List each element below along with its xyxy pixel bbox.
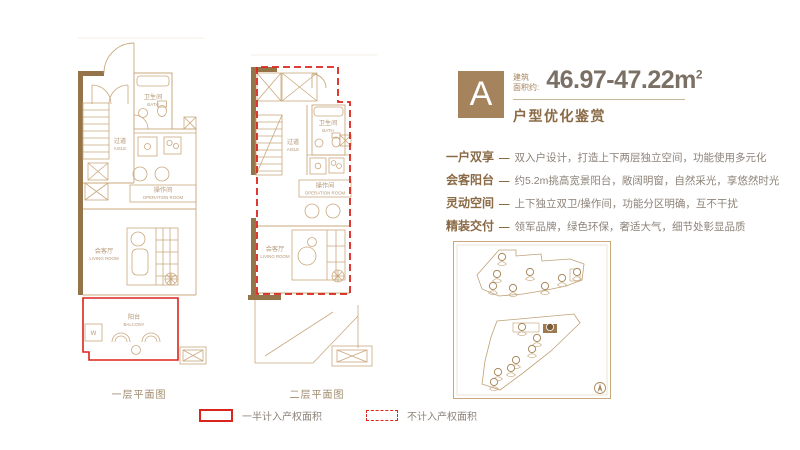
feature-dash: — [499, 175, 510, 187]
feature-list: 一户双享—双入户设计，打造上下两层独立空间，功能使用多元化 会客阳台—约5.2m… [446, 148, 796, 240]
area-number: 46.97-47.22m [546, 66, 696, 94]
room-label-living-cn: 会客厅 [266, 245, 285, 253]
floorplan-flyer: 卫生间 BATH 过道 AISLE 操作间 OPERATION ROOM 会客厅… [0, 0, 800, 450]
unit-markers [489, 253, 582, 390]
feature-desc: 领军品牌，绿色环保，奢适大气，细节处彰显品质 [515, 221, 746, 233]
room-label-operation-en: OPERATION ROOM [305, 191, 346, 196]
feature-keyword: 会客阳台 [446, 173, 494, 187]
room-label-aisle-en: AISLE [114, 146, 127, 151]
feature-desc: 上下独立双卫/操作间，功能分区明确，互不干扰 [515, 198, 738, 210]
room-label-balcony-en: BALCONY [124, 322, 145, 327]
entry-door [104, 43, 134, 73]
room-label-operation-cn: 操作间 [316, 182, 335, 190]
room-label-living-en: LIVING ROOM [89, 256, 119, 261]
room-label-operation-cn: 操作间 [154, 186, 173, 194]
site-plan-drawing [453, 241, 611, 399]
first-floor-caption: 一层平面图 [64, 386, 214, 401]
site-plan [453, 241, 611, 399]
room-label-bath-en: BATH [322, 128, 333, 133]
room-label-operation-en: OPERATION ROOM [143, 195, 184, 200]
area-superscript: 2 [696, 68, 702, 82]
double-height-void [255, 300, 372, 366]
stairs [83, 103, 109, 200]
feature-item: 一户双享—双入户设计，打造上下两层独立空间，功能使用多元化 [446, 148, 796, 165]
feature-desc: 约5.2m挑高宽景阳台，敞阔明窗，自然采光，享悠然时光 [515, 175, 780, 187]
walls [248, 67, 281, 300]
balcony-outline-solid-red [83, 298, 178, 360]
area-block: 建筑 面积约: 46.97-47.22m2 户型优化鉴赏 [513, 66, 743, 126]
legend-solid-label: 一半计入产权面积 [242, 408, 322, 423]
plan-subtitle: 户型优化鉴赏 [513, 106, 743, 126]
feature-dash: — [499, 221, 510, 233]
unit-letter-badge: A [458, 71, 504, 118]
feature-item: 会客阳台—约5.2m挑高宽景阳台，敞阔明窗，自然采光，享悠然时光 [446, 171, 796, 188]
room-label-bath-cn: 卫生间 [144, 93, 163, 101]
area-legend: 一半计入产权面积 不计入产权面积 [199, 408, 477, 423]
plan-outline [83, 73, 196, 295]
site-plan-inner-border [457, 245, 607, 395]
feature-desc: 双入户设计，打造上下两层独立空间，功能使用多元化 [515, 152, 767, 164]
legend-dashed-swatch [366, 410, 398, 421]
area-value: 46.97-47.22m2 [546, 66, 702, 95]
room-label-bath-en: BATH [147, 102, 158, 107]
area-prefix-line2: 面积约: [513, 83, 539, 93]
feature-keyword: 精装交付 [446, 219, 494, 233]
area-prefix-line1: 建筑 [513, 73, 539, 83]
feature-dash: — [499, 198, 510, 210]
kitchen-fixtures [134, 117, 196, 156]
feature-item: 灵动空间—上下独立双卫/操作间，功能分区明确，互不干扰 [446, 194, 796, 211]
room-label-aisle-cn: 过道 [114, 137, 126, 145]
area-prefix: 建筑 面积约: [513, 73, 539, 92]
second-floor-plan: 卫生间 BATH 过道 AISLE 操作间 OPERATION ROOM 会客厅… [237, 50, 397, 385]
double-doors [92, 85, 128, 104]
feature-dash: — [499, 152, 510, 164]
legend-solid-swatch [199, 409, 233, 422]
bath-fixtures [314, 107, 343, 147]
second-floor-caption: 二层平面图 [237, 386, 397, 401]
void-shafts [257, 73, 317, 101]
living-furniture [127, 228, 178, 285]
feature-keyword: 一户双享 [446, 150, 494, 164]
room-label-balcony-cn: 阳台 [128, 313, 140, 321]
kitchen-fixtures [307, 135, 351, 174]
washer-glyph: W [91, 331, 97, 337]
room-labels: 卫生间 BATH 过道 AISLE 操作间 OPERATION ROOM 会客厅… [260, 119, 345, 259]
feature-item: 精装交付—领军品牌，绿色环保，奢适大气，细节处彰显品质 [446, 217, 796, 234]
first-floor-plan: 卫生间 BATH 过道 AISLE 操作间 OPERATION ROOM 会客厅… [64, 33, 214, 368]
site-plan-border [454, 242, 611, 399]
stairs [256, 115, 282, 175]
room-label-aisle-en: AISLE [287, 147, 300, 152]
first-floor-plan-drawing: 卫生间 BATH 过道 AISLE 操作间 OPERATION ROOM 会客厅… [64, 33, 214, 368]
feature-keyword: 灵动空间 [446, 196, 494, 210]
room-label-living-cn: 会客厅 [95, 247, 114, 255]
balcony-furniture [85, 324, 206, 364]
compass-icon [595, 383, 606, 394]
room-labels: 卫生间 BATH 过道 AISLE 操作间 OPERATION ROOM 会客厅… [89, 93, 183, 337]
room-label-bath-cn: 卫生间 [319, 119, 338, 127]
second-floor-plan-drawing: 卫生间 BATH 过道 AISLE 操作间 OPERATION ROOM 会客厅… [237, 50, 397, 385]
legend-dashed-label: 不计入产权面积 [407, 408, 477, 423]
room-label-living-en: LIVING ROOM [260, 254, 290, 259]
header-divider [513, 99, 685, 100]
room-label-aisle-cn: 过道 [287, 138, 299, 146]
living-furniture [292, 230, 345, 282]
highlighted-unit-a-marker [543, 323, 557, 333]
